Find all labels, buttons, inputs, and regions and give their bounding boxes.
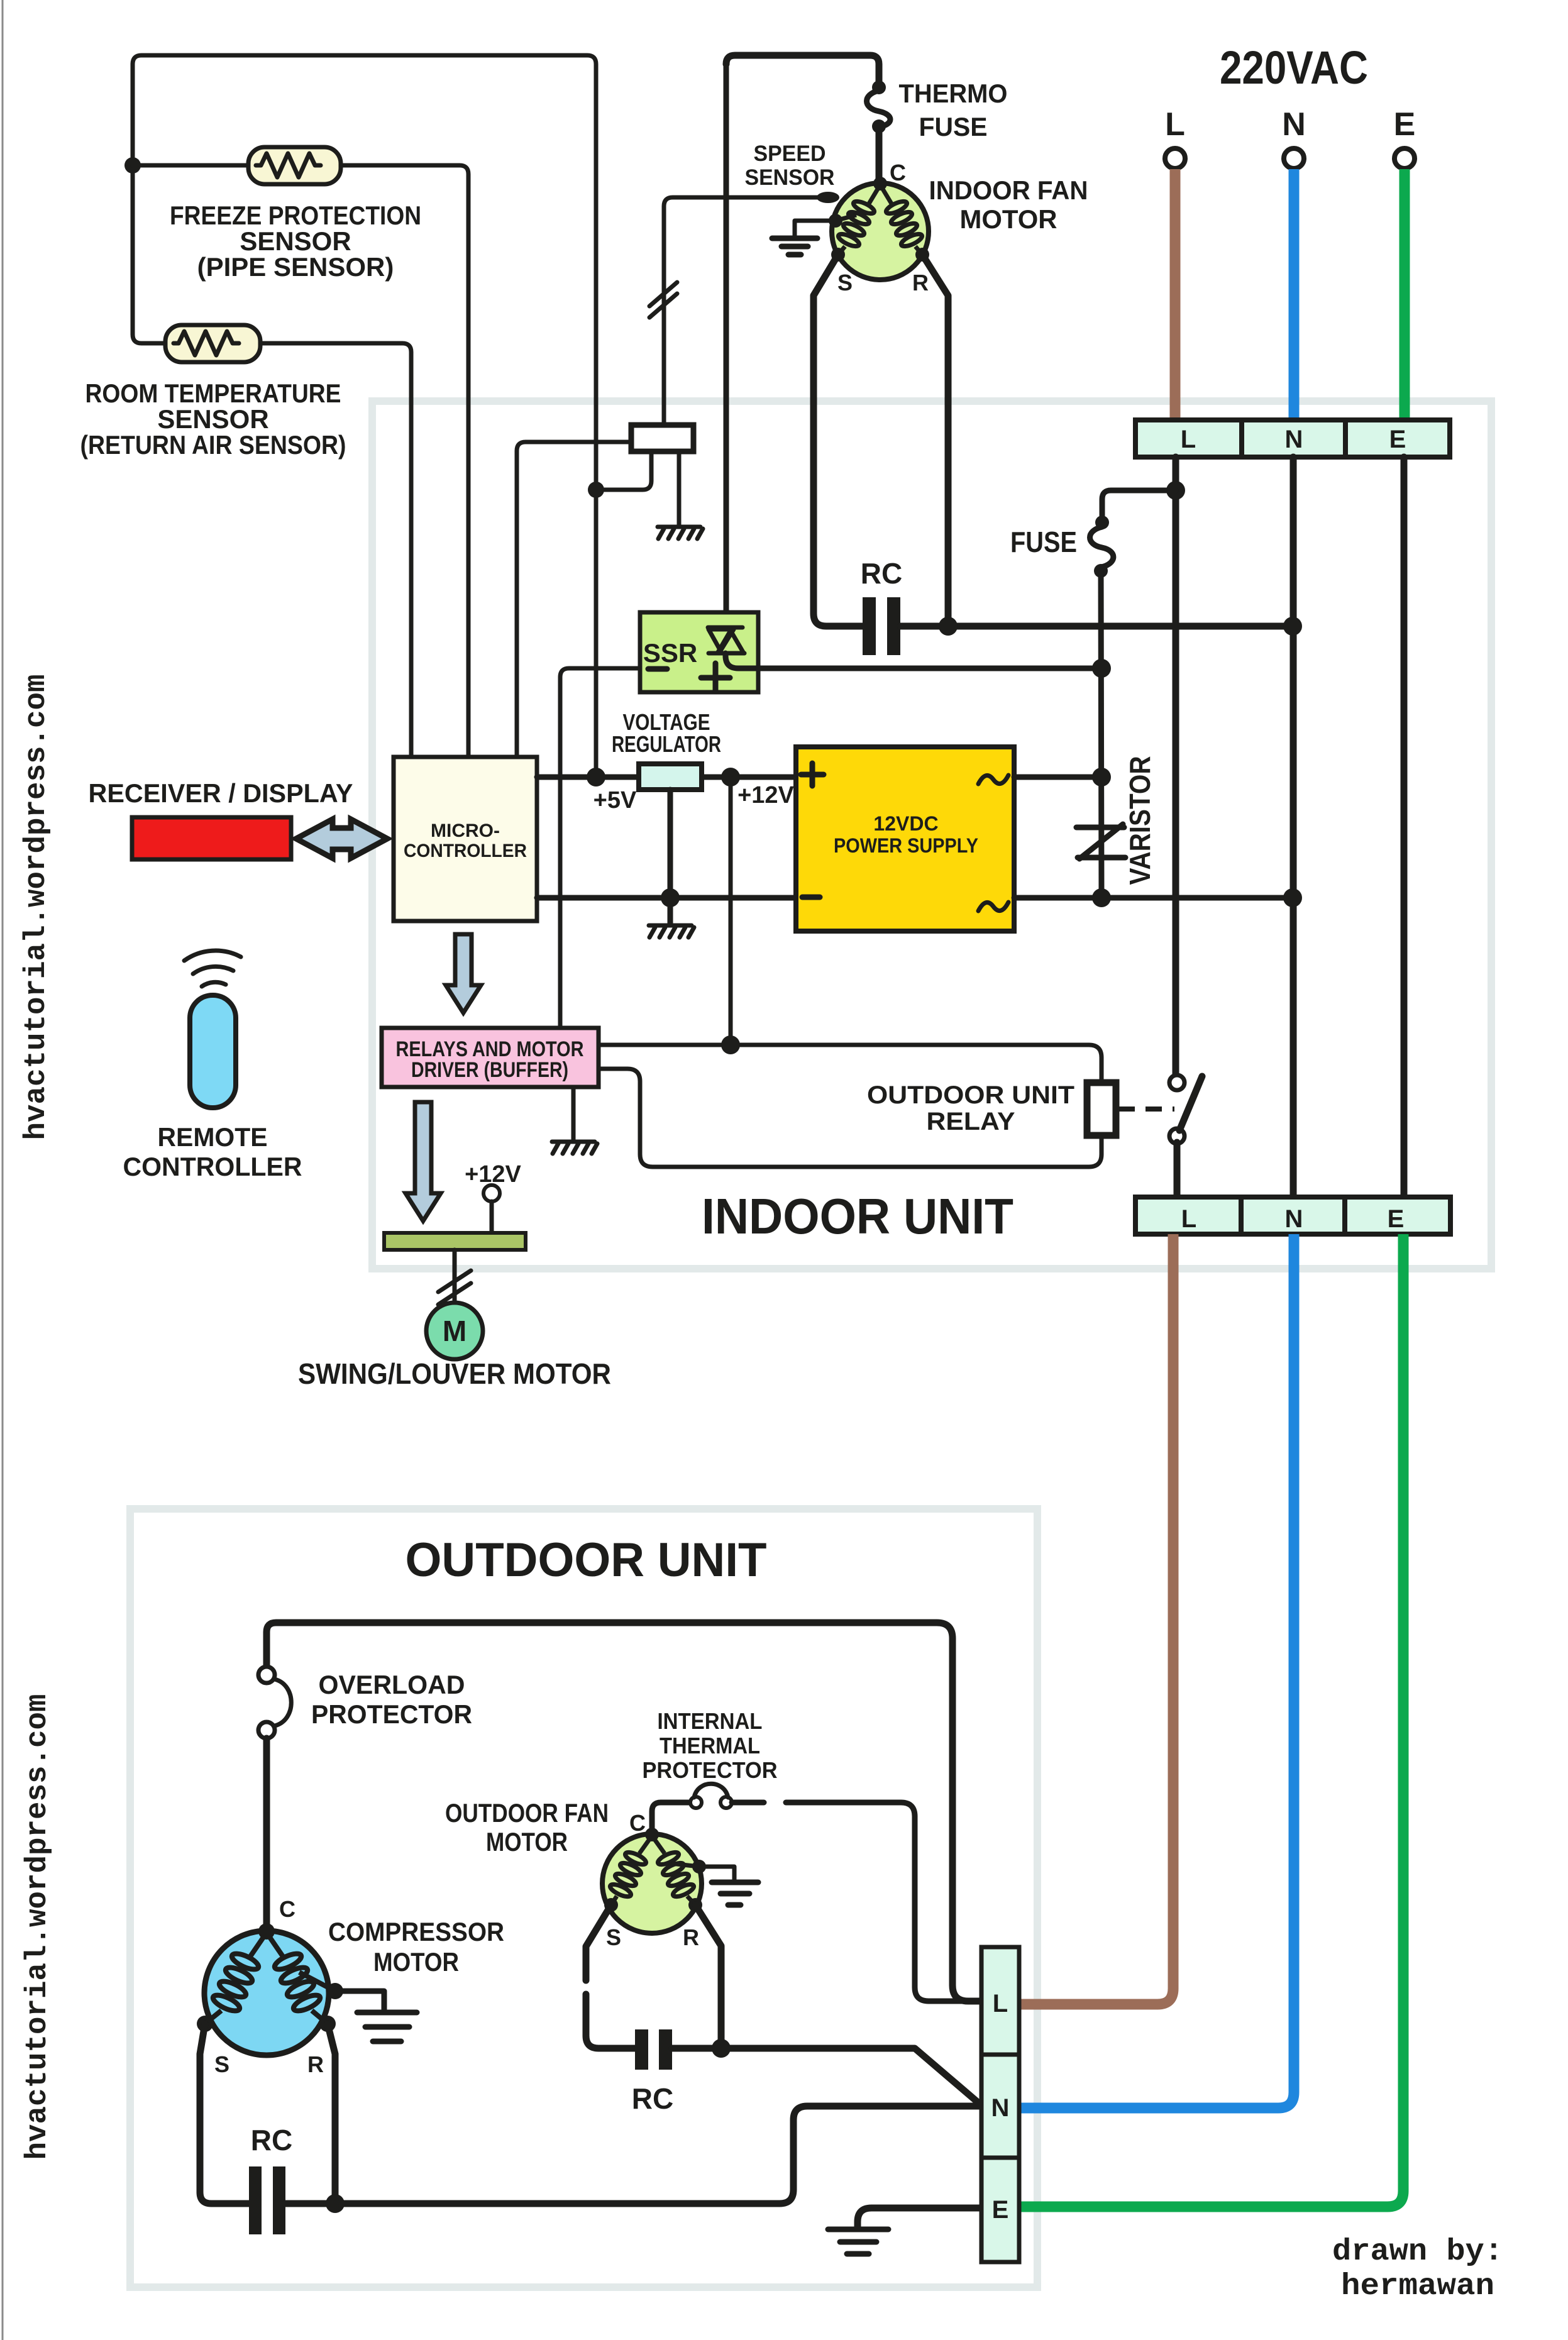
svg-text:OVERLOAD: OVERLOAD: [319, 1670, 465, 1699]
svg-text:SENSOR: SENSOR: [240, 226, 351, 256]
svg-text:POWER SUPPLY: POWER SUPPLY: [834, 834, 978, 857]
svg-text:RELAY: RELAY: [927, 1108, 1015, 1135]
svg-text:N: N: [1282, 106, 1306, 143]
svg-text:MOTOR: MOTOR: [960, 204, 1057, 234]
svg-text:(RETURN AIR SENSOR): (RETURN AIR SENSOR): [80, 430, 346, 460]
svg-text:hvactutorial.wordpress.com: hvactutorial.wordpress.com: [21, 1694, 55, 2160]
svg-text:hermawan: hermawan: [1341, 2270, 1494, 2304]
svg-text:MICRO-: MICRO-: [431, 820, 500, 841]
svg-text:L: L: [1165, 106, 1185, 143]
svg-text:L: L: [993, 1990, 1008, 2017]
svg-text:N: N: [1285, 1205, 1303, 1233]
svg-text:RC: RC: [861, 557, 902, 590]
svg-text:R: R: [683, 1924, 699, 1950]
svg-text:COMPRESSOR: COMPRESSOR: [328, 1917, 504, 1946]
svg-text:INDOOR FAN: INDOOR FAN: [929, 175, 1088, 205]
svg-text:drawn by:: drawn by:: [1332, 2235, 1503, 2269]
svg-text:REGULATOR: REGULATOR: [612, 731, 721, 757]
svg-text:CONTROLLER: CONTROLLER: [404, 841, 527, 861]
svg-text:RC: RC: [632, 2082, 673, 2115]
svg-text:ROOM TEMPERATURE: ROOM TEMPERATURE: [86, 378, 341, 408]
svg-text:MOTOR: MOTOR: [486, 1827, 568, 1857]
svg-text:N: N: [1285, 426, 1303, 453]
svg-text:C: C: [890, 160, 906, 185]
svg-text:FREEZE PROTECTION: FREEZE PROTECTION: [170, 201, 421, 230]
svg-text:12VDC: 12VDC: [873, 812, 938, 835]
svg-text:C: C: [629, 1810, 646, 1836]
svg-text:SWING/LOUVER MOTOR: SWING/LOUVER MOTOR: [298, 1357, 611, 1390]
svg-text:PROTECTOR: PROTECTOR: [643, 1757, 778, 1783]
svg-text:OUTDOOR FAN: OUTDOOR FAN: [445, 1798, 609, 1828]
svg-text:RC: RC: [251, 2124, 292, 2156]
svg-text:+12V: +12V: [737, 782, 794, 809]
svg-text:N: N: [991, 2094, 1010, 2122]
svg-text:INTERNAL: INTERNAL: [658, 1708, 763, 1734]
svg-text:INDOOR UNIT: INDOOR UNIT: [702, 1188, 1013, 1244]
svg-text:E: E: [1388, 1205, 1405, 1233]
svg-text:E: E: [1394, 106, 1416, 143]
svg-text:L: L: [1181, 1205, 1196, 1233]
svg-text:SENSOR: SENSOR: [157, 404, 268, 434]
svg-text:DRIVER (BUFFER): DRIVER (BUFFER): [411, 1058, 568, 1082]
svg-text:RECEIVER / DISPLAY: RECEIVER / DISPLAY: [89, 778, 353, 808]
svg-text:FUSE: FUSE: [919, 112, 988, 141]
svg-text:E: E: [1389, 426, 1406, 453]
svg-text:L: L: [1181, 426, 1196, 453]
svg-text:CONTROLLER: CONTROLLER: [123, 1152, 302, 1181]
svg-text:VARISTOR: VARISTOR: [1124, 756, 1156, 885]
svg-text:S: S: [837, 270, 853, 295]
svg-text:OUTDOOR UNIT: OUTDOOR UNIT: [406, 1533, 767, 1587]
svg-text:+5V: +5V: [594, 787, 637, 814]
svg-text:MOTOR: MOTOR: [373, 1947, 459, 1977]
svg-text:E: E: [992, 2196, 1009, 2224]
svg-text:220VAC: 220VAC: [1220, 41, 1368, 94]
svg-text:S: S: [606, 1924, 621, 1950]
svg-text:hvactutorial.wordpress.com: hvactutorial.wordpress.com: [20, 675, 53, 1140]
svg-text:THERMO: THERMO: [899, 79, 1008, 108]
svg-text:SSR: SSR: [643, 638, 697, 668]
svg-text:R: R: [912, 270, 929, 295]
svg-text:OUTDOOR UNIT: OUTDOOR UNIT: [867, 1081, 1074, 1109]
svg-text:(PIPE SENSOR): (PIPE SENSOR): [197, 252, 394, 282]
svg-text:S: S: [214, 2051, 229, 2077]
svg-text:SPEED: SPEED: [754, 141, 826, 166]
svg-text:REMOTE: REMOTE: [158, 1122, 268, 1152]
svg-text:R: R: [307, 2051, 324, 2077]
svg-text:C: C: [279, 1896, 295, 1922]
svg-text:PROTECTOR: PROTECTOR: [311, 1699, 472, 1729]
svg-text:THERMAL: THERMAL: [660, 1733, 760, 1758]
svg-text:FUSE: FUSE: [1010, 526, 1077, 558]
svg-text:M: M: [443, 1315, 467, 1347]
svg-text:SENSOR: SENSOR: [745, 165, 835, 190]
